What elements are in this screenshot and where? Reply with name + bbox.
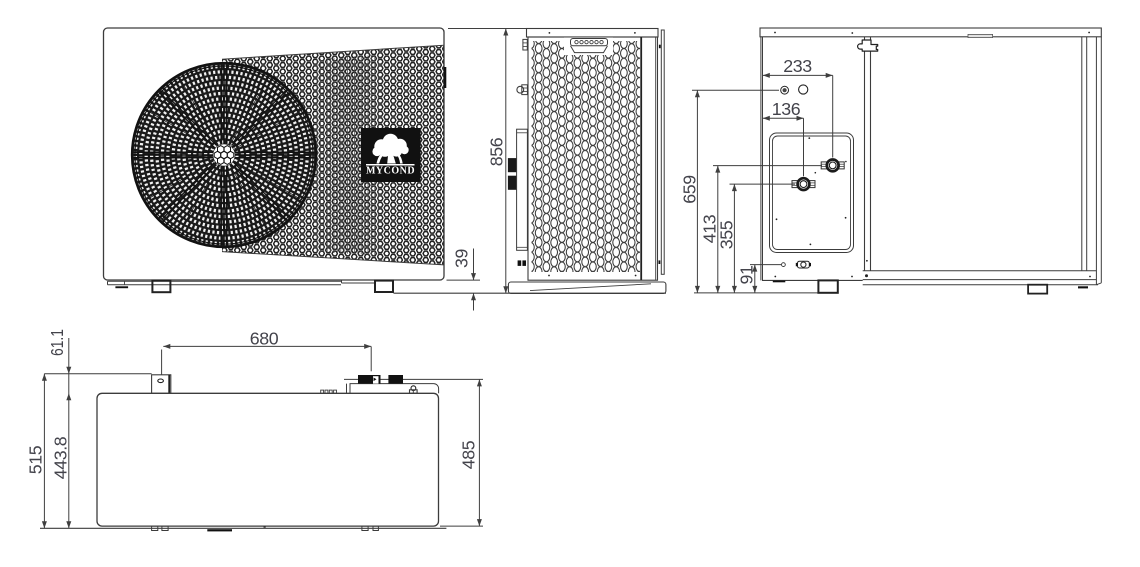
svg-text:39: 39 — [452, 249, 472, 268]
svg-text:136: 136 — [772, 99, 801, 119]
svg-text:233: 233 — [783, 56, 812, 76]
svg-text:MYCOND: MYCOND — [366, 165, 415, 176]
svg-text:443.8: 443.8 — [51, 436, 71, 479]
svg-text:680: 680 — [250, 329, 279, 349]
svg-text:91: 91 — [737, 265, 757, 284]
svg-text:61.1: 61.1 — [47, 329, 67, 356]
svg-text:355: 355 — [717, 220, 737, 249]
svg-text:659: 659 — [680, 175, 700, 204]
svg-text:856: 856 — [487, 137, 507, 166]
svg-text:515: 515 — [26, 445, 46, 474]
svg-text:485: 485 — [459, 440, 479, 469]
